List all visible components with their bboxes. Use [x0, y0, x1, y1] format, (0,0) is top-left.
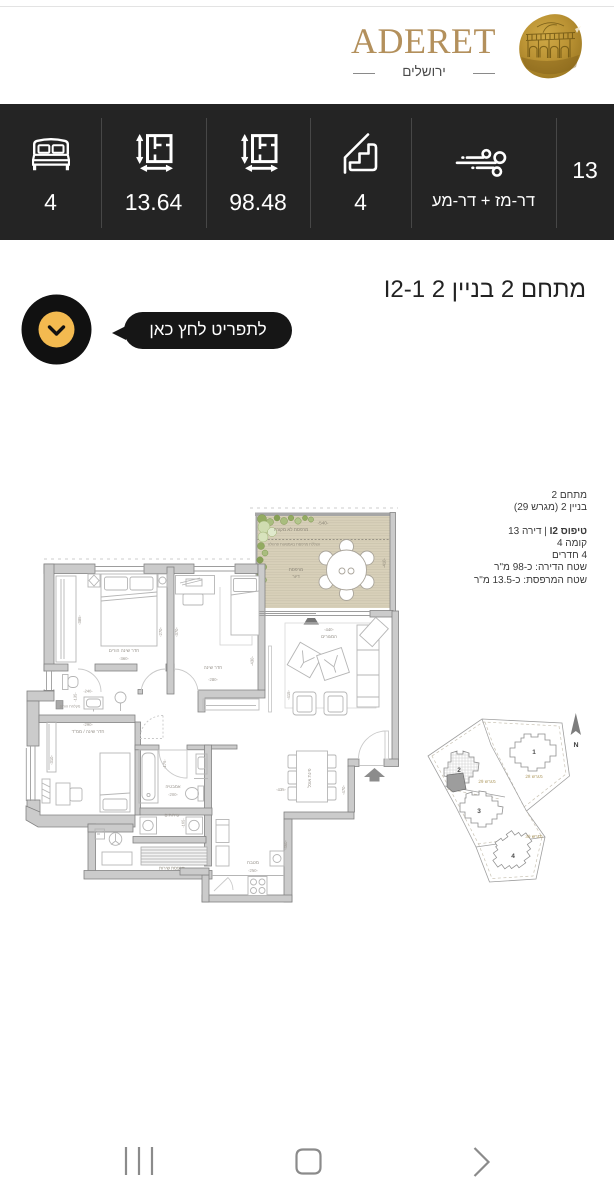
- svg-text:-430-: -430-: [250, 656, 255, 666]
- svg-text:מגרש 29: מגרש 29: [478, 779, 495, 784]
- svg-text:-135-: -135-: [73, 692, 78, 702]
- svg-text:חדר שינה הורים: חדר שינה הורים: [109, 648, 140, 653]
- svg-text:דיור: דיור: [292, 574, 300, 579]
- svg-text:שירותים: שירותים: [165, 813, 181, 818]
- svg-text:-415-: -415-: [286, 690, 291, 700]
- svg-text:2: 2: [457, 767, 461, 774]
- svg-text:אמבטיה: אמבטיה: [165, 784, 180, 789]
- svg-text:-290-: -290-: [83, 722, 93, 727]
- svg-text:-385-: -385-: [77, 615, 82, 625]
- svg-text:מרפסת לא מקורה: מרפסת לא מקורה: [274, 527, 309, 532]
- svg-text:N: N: [573, 742, 578, 749]
- svg-text:מקלחת הורים: מקלחת הורים: [60, 705, 81, 709]
- svg-text:מגרש 28: מגרש 28: [525, 774, 542, 779]
- svg-text:-460-: -460-: [283, 840, 288, 850]
- svg-text:מגרש 30: מגרש 30: [525, 834, 542, 839]
- svg-text:-410-: -410-: [382, 558, 387, 568]
- svg-text:המגורים: המגורים: [321, 634, 337, 639]
- svg-text:-540-: -540-: [318, 521, 329, 526]
- svg-text:הצללת מרפסת באמצעות פרגולה: הצללת מרפסת באמצעות פרגולה: [268, 542, 321, 547]
- svg-text:3: 3: [477, 808, 481, 815]
- svg-text:-280-: -280-: [208, 677, 218, 682]
- svg-text:חדר שינה: חדר שינה: [204, 665, 223, 670]
- svg-text:-370-: -370-: [174, 627, 179, 637]
- svg-text:-310-: -310-: [49, 755, 54, 765]
- svg-text:-175-: -175-: [162, 759, 167, 769]
- svg-text:מטבח: מטבח: [247, 860, 259, 865]
- svg-text:-470-: -470-: [341, 785, 346, 795]
- svg-text:-165-: -165-: [181, 818, 186, 828]
- svg-text:4: 4: [511, 853, 515, 860]
- svg-text:-440-: -440-: [324, 627, 334, 632]
- svg-text:-250-: -250-: [248, 868, 258, 873]
- svg-text:1: 1: [532, 749, 536, 756]
- svg-text:-240-: -240-: [83, 689, 93, 694]
- svg-text:-200-: -200-: [168, 792, 178, 797]
- svg-text:-435-: -435-: [276, 787, 286, 792]
- svg-text:חדר שינה / ממ"ד: חדר שינה / ממ"ד: [72, 729, 105, 734]
- svg-text:-360-: -360-: [119, 656, 129, 661]
- svg-text:פינת אוכל: פינת אוכל: [307, 768, 312, 787]
- svg-text:מרפסת: מרפסת: [289, 567, 303, 572]
- svg-text:-270-: -270-: [158, 627, 163, 637]
